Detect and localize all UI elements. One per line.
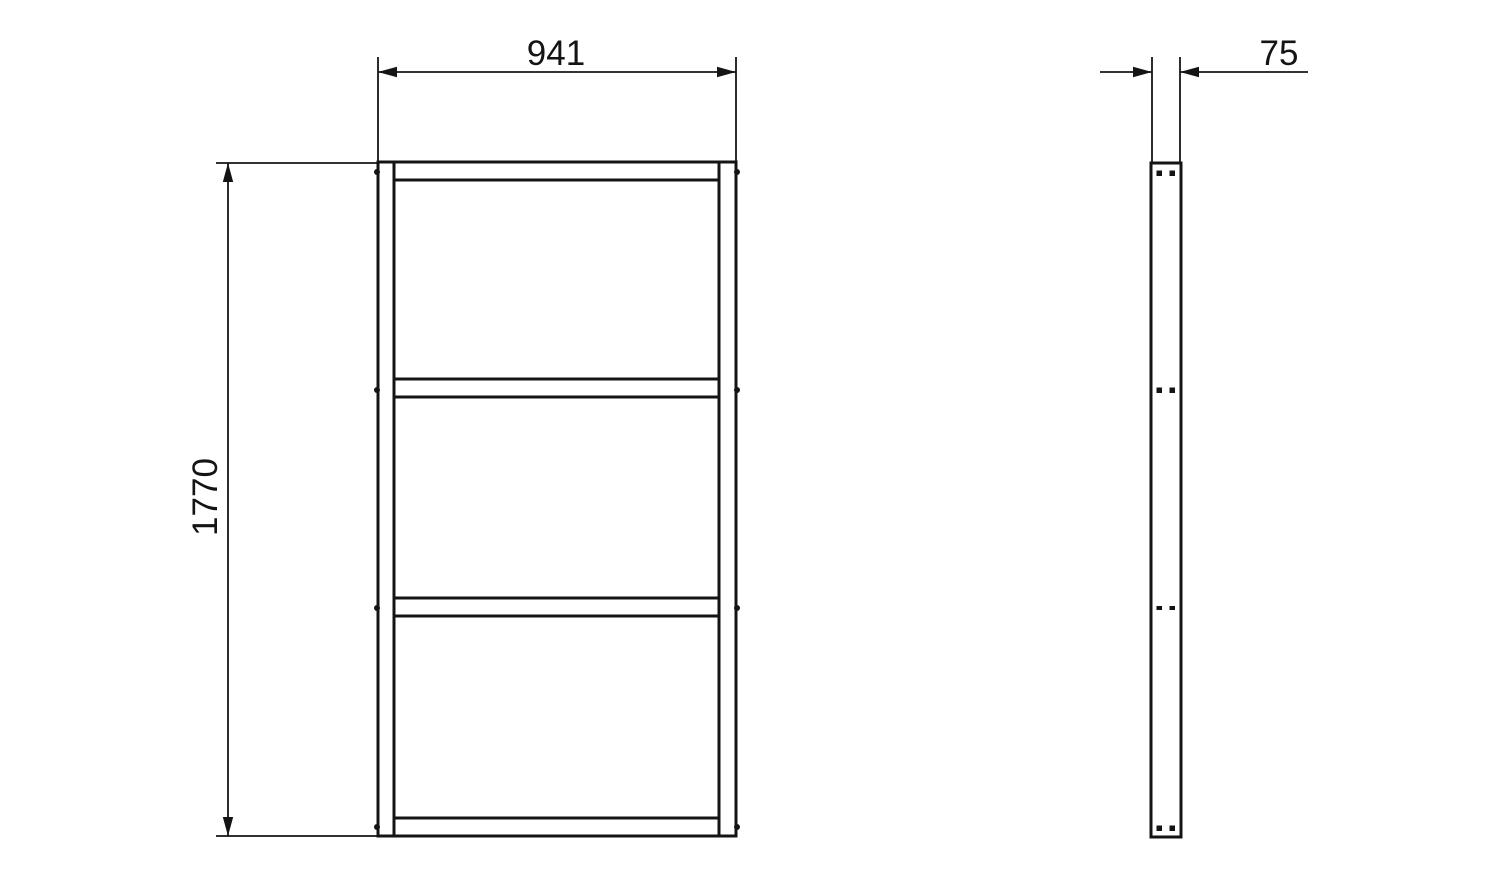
frame-dimension-drawing: 941 1770 [0,0,1500,880]
side-fastener-hole [1157,171,1163,177]
width-dim-arrow-left-icon [378,67,397,77]
front-right-fastener-dot [734,824,740,830]
dimension-width: 941 [378,34,736,162]
depth-dim-arrow-left-icon [1133,67,1152,77]
depth-dim-arrow-right-icon [1180,67,1199,77]
depth-dim-label: 75 [1260,34,1299,73]
front-left-fastener-dot [374,169,380,175]
front-left-fastener-dot [374,605,380,611]
side-fastener-hole [1170,826,1176,832]
front-view [374,162,740,836]
front-left-fastener-dot [374,824,380,830]
side-fastener-hole [1157,606,1163,610]
height-dim-arrow-bottom-icon [223,817,233,836]
width-dim-label: 941 [527,34,585,73]
dimension-depth: 75 [1100,34,1308,162]
side-fastener-hole [1170,171,1176,177]
height-dim-arrow-top-icon [223,163,233,182]
height-dim-label: 1770 [186,458,225,536]
front-left-fastener-dot [374,387,380,393]
front-right-fastener-dot [734,169,740,175]
side-fastener-hole [1157,826,1163,832]
front-right-fastener-dot [734,387,740,393]
side-fastener-hole [1170,606,1176,610]
front-right-fastener-dot [734,605,740,611]
side-fastener-hole [1170,388,1176,394]
side-fastener-hole [1157,388,1163,394]
side-profile-outline [1151,163,1181,837]
dimension-height: 1770 [186,163,378,836]
width-dim-arrow-right-icon [717,67,736,77]
technical-drawing-page: 941 1770 [0,0,1500,880]
front-frame-outline [378,162,736,836]
side-view [1151,163,1181,837]
